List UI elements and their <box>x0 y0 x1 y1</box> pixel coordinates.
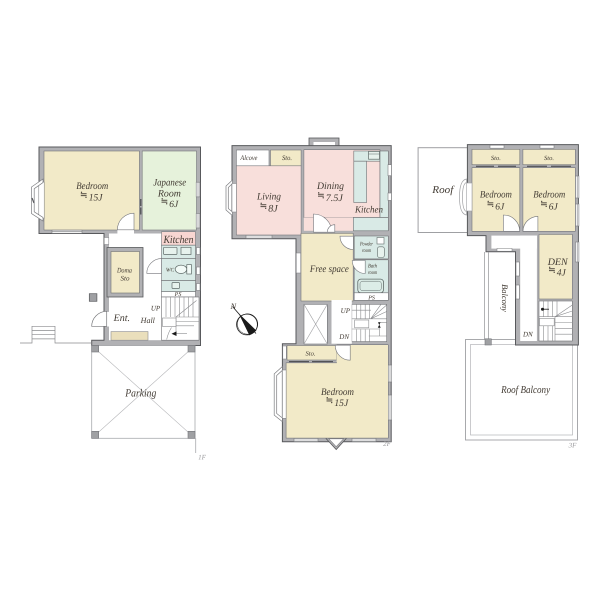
svg-text:Balcony: Balcony <box>500 284 510 312</box>
svg-text:Free space: Free space <box>309 264 349 275</box>
svg-text:Bath: Bath <box>368 264 377 270</box>
svg-text:Sto: Sto <box>121 275 130 283</box>
svg-text:Bedroom: Bedroom <box>533 190 565 201</box>
svg-text:Parking: Parking <box>124 387 156 399</box>
svg-text:Roof: Roof <box>431 185 455 196</box>
svg-text:Alcove: Alcove <box>240 154 258 162</box>
svg-text:DN: DN <box>522 331 533 339</box>
svg-text:7.5J: 7.5J <box>326 193 344 204</box>
svg-text:UP: UP <box>151 305 161 313</box>
svg-text:Hall: Hall <box>140 316 156 325</box>
svg-text:6J: 6J <box>495 203 505 213</box>
svg-text:Sto.: Sto. <box>544 155 554 162</box>
svg-text:15J: 15J <box>334 398 348 409</box>
svg-text:DEN: DEN <box>547 257 569 268</box>
svg-text:room: room <box>362 248 371 254</box>
svg-text:PS: PS <box>367 296 375 302</box>
svg-text:Bedroom: Bedroom <box>76 181 108 192</box>
svg-text:8J: 8J <box>268 204 278 215</box>
svg-text:Japanese: Japanese <box>153 178 186 189</box>
svg-text:Dining: Dining <box>316 181 344 192</box>
svg-text:Kitchen: Kitchen <box>354 206 383 216</box>
svg-text:Powder: Powder <box>359 242 373 248</box>
svg-text:Sto.: Sto. <box>306 350 316 357</box>
svg-text:PS: PS <box>174 292 182 298</box>
svg-text:15J: 15J <box>89 193 103 204</box>
svg-text:6J: 6J <box>169 200 179 210</box>
svg-text:1F: 1F <box>198 454 207 462</box>
svg-text:3F: 3F <box>568 442 578 450</box>
svg-text:room: room <box>368 270 377 276</box>
svg-text:Ent.: Ent. <box>113 313 130 324</box>
svg-text:Kitchen: Kitchen <box>163 234 194 246</box>
svg-text:Bedroom: Bedroom <box>480 190 512 201</box>
svg-text:Doma: Doma <box>116 267 132 275</box>
svg-text:6J: 6J <box>549 203 559 213</box>
svg-text:Living: Living <box>256 192 281 203</box>
svg-text:Sto.: Sto. <box>282 154 292 162</box>
svg-text:Sto.: Sto. <box>491 155 501 162</box>
svg-text:UP: UP <box>341 307 351 315</box>
svg-text:4J: 4J <box>557 269 567 279</box>
svg-text:2F: 2F <box>383 440 392 448</box>
svg-text:DN: DN <box>338 333 349 341</box>
svg-text:Bedroom: Bedroom <box>321 387 354 398</box>
svg-text:WC: WC <box>166 268 175 274</box>
svg-text:Room: Room <box>157 189 181 200</box>
svg-text:Roof Balcony: Roof Balcony <box>500 385 550 396</box>
